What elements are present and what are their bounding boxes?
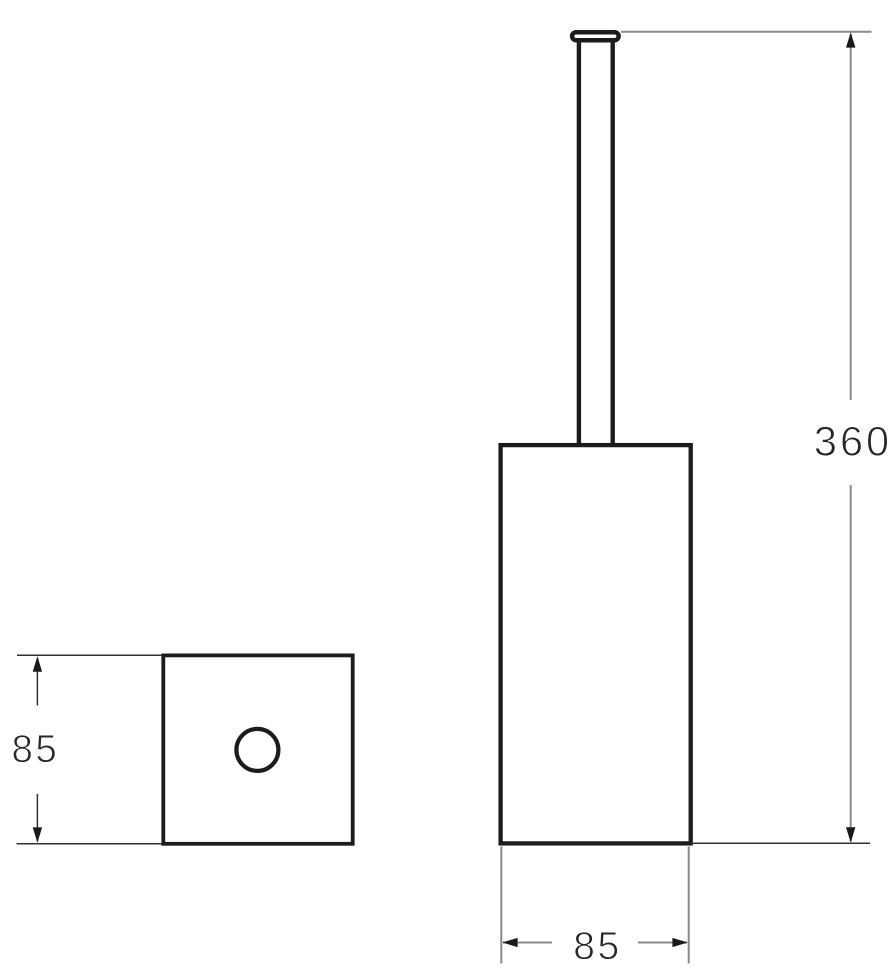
svg-text:360: 360 [814, 417, 892, 464]
svg-text:85: 85 [573, 925, 621, 968]
svg-text:85: 85 [11, 728, 59, 771]
